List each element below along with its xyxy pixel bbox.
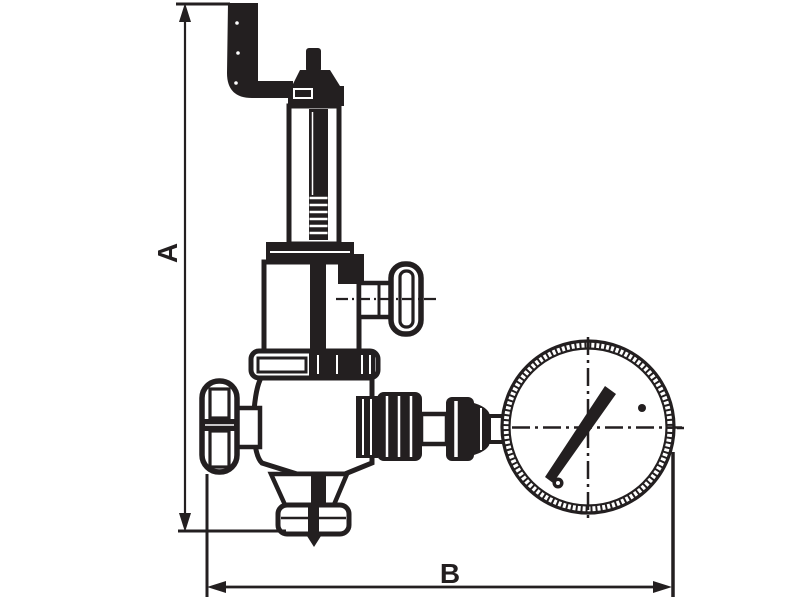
connection-pipe	[421, 414, 447, 444]
tee-boss	[338, 254, 364, 284]
pipe-highlight-dot	[235, 21, 239, 25]
handwheel	[202, 381, 237, 472]
pressure-gauge	[502, 337, 682, 521]
dim-b-label: B	[440, 558, 460, 589]
spring-bonnet	[266, 106, 354, 263]
technical-drawing: A B	[0, 0, 800, 598]
port-flange	[356, 396, 378, 458]
gauge-connection-fittings	[356, 392, 506, 461]
chamber-stem	[310, 264, 326, 351]
valve-drawing-svg: A B	[0, 0, 800, 598]
pipe-highlight-dot	[234, 81, 238, 85]
union-nut-2	[446, 397, 474, 461]
body-shell	[254, 378, 372, 474]
outlet-neck	[271, 474, 347, 507]
dim-b-arrow-right	[653, 581, 672, 593]
dim-a-arrow-up	[179, 3, 191, 22]
valve-body	[236, 378, 372, 547]
flange-center-bar	[308, 507, 319, 533]
dim-a-label: A	[152, 243, 183, 263]
adjusting-screw-cap	[288, 48, 344, 106]
adjuster-stem	[306, 48, 321, 72]
outlet-stem-bar	[311, 474, 326, 507]
dim-b-arrow-left	[207, 581, 226, 593]
collar-inner-box	[258, 358, 306, 372]
union-nut-collar	[251, 351, 378, 378]
pipe-highlight-dot	[236, 51, 240, 55]
cap-trapezoid	[292, 70, 340, 86]
gauge-screw-lower-center	[556, 481, 560, 485]
gauge-screw-upper	[638, 404, 646, 412]
outlet-elbow-pipe	[227, 3, 293, 98]
drip-point	[307, 536, 321, 547]
dim-a-arrow-down	[179, 513, 191, 532]
